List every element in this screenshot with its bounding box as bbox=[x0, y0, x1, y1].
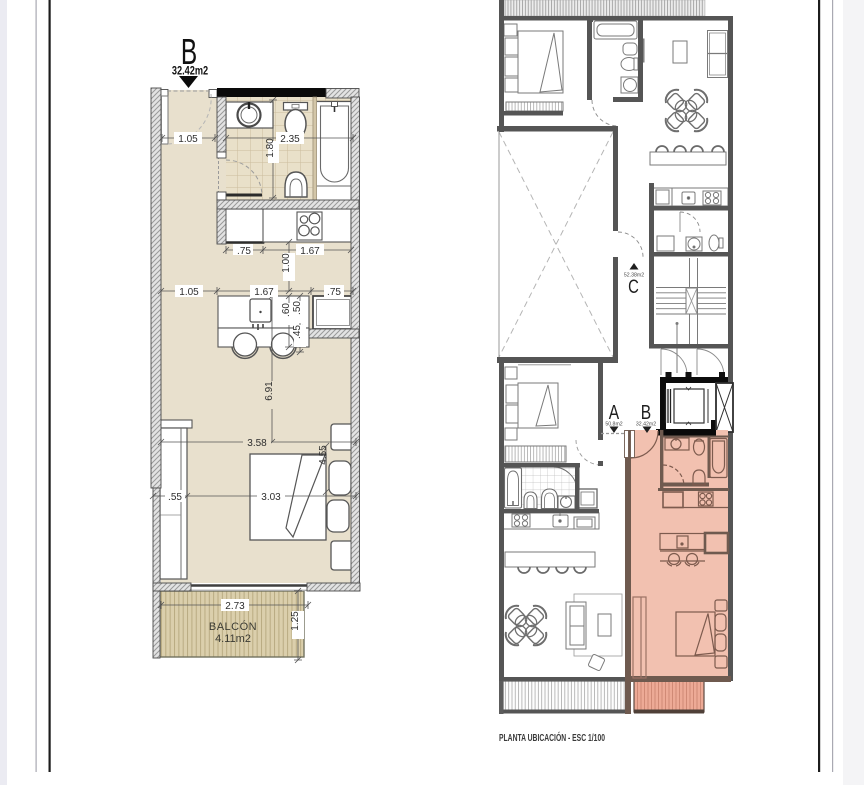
svg-text:.55: .55 bbox=[168, 492, 182, 503]
svg-text:1.80: 1.80 bbox=[265, 138, 276, 158]
svg-text:2.35: 2.35 bbox=[280, 134, 300, 145]
svg-text:3.03: 3.03 bbox=[261, 492, 281, 503]
svg-text:.60: .60 bbox=[281, 303, 292, 317]
svg-text:32.42m2: 32.42m2 bbox=[172, 66, 208, 78]
svg-text:3.58: 3.58 bbox=[247, 438, 267, 449]
svg-text:1.00: 1.00 bbox=[281, 253, 292, 273]
svg-text:1.25: 1.25 bbox=[290, 611, 301, 631]
svg-text:1.05: 1.05 bbox=[179, 287, 199, 298]
svg-text:4.55: 4.55 bbox=[318, 445, 329, 465]
svg-text:B: B bbox=[641, 401, 651, 423]
svg-text:2.73: 2.73 bbox=[225, 601, 245, 612]
svg-text:4.11m2: 4.11m2 bbox=[215, 633, 251, 645]
svg-text:PLANTA UBICACIÓN - ESC 1/100: PLANTA UBICACIÓN - ESC 1/100 bbox=[499, 731, 605, 744]
svg-text:1.67: 1.67 bbox=[254, 287, 274, 298]
svg-text:BALCÓN: BALCÓN bbox=[209, 620, 257, 633]
svg-text:.75: .75 bbox=[237, 246, 251, 257]
svg-text:C: C bbox=[628, 276, 639, 297]
svg-text:1.05: 1.05 bbox=[178, 134, 198, 145]
svg-text:1.67: 1.67 bbox=[300, 246, 320, 257]
svg-text:A: A bbox=[609, 401, 619, 423]
svg-text:.75: .75 bbox=[327, 287, 341, 298]
svg-text:6.91: 6.91 bbox=[264, 381, 275, 401]
svg-text:.45: .45 bbox=[292, 325, 303, 339]
svg-text:.50: .50 bbox=[292, 301, 303, 315]
